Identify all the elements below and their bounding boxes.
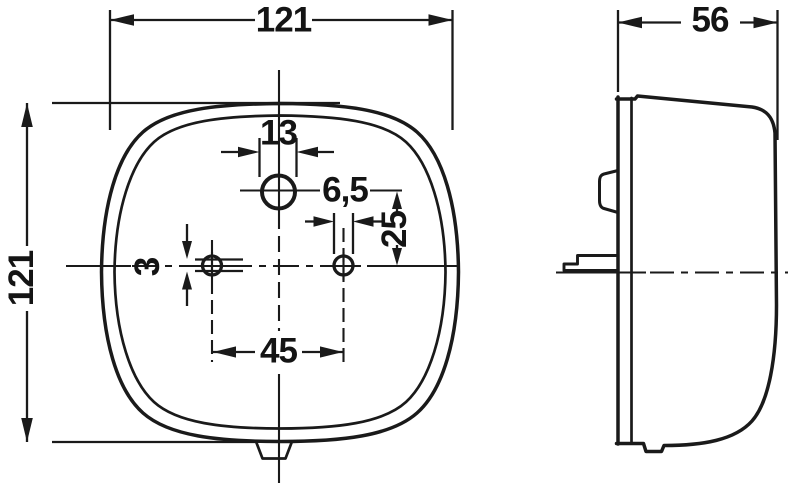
slot-label: 3	[128, 257, 167, 276]
hole-spacing-label: 45	[260, 332, 297, 371]
dim-top-hole: 13	[221, 114, 334, 178]
top-hole-label: 13	[260, 114, 297, 153]
side-view: 56	[556, 1, 788, 452]
dim-side-depth: 56	[618, 1, 778, 141]
dim-hole-spacing: 45	[213, 332, 343, 371]
front-view: 121 121 13	[2, 1, 459, 484]
front-bottom-tab	[256, 442, 292, 459]
side-mount-stud	[564, 256, 618, 271]
technical-drawing-sheet: 121 121 13	[0, 0, 800, 485]
front-height-label: 121	[2, 250, 41, 306]
dim-front-height: 121	[2, 103, 340, 442]
side-depth-label: 56	[692, 1, 729, 40]
dim-hole-offset: 25	[375, 192, 440, 267]
mount-hole-label: 6,5	[322, 171, 368, 210]
front-width-label: 121	[256, 1, 312, 40]
hole-offset-label: 25	[375, 211, 414, 248]
side-outline	[617, 96, 777, 452]
drawing-canvas: 121 121 13	[0, 0, 800, 485]
dim-front-width: 121	[110, 1, 453, 131]
side-clip-tab	[600, 171, 619, 213]
